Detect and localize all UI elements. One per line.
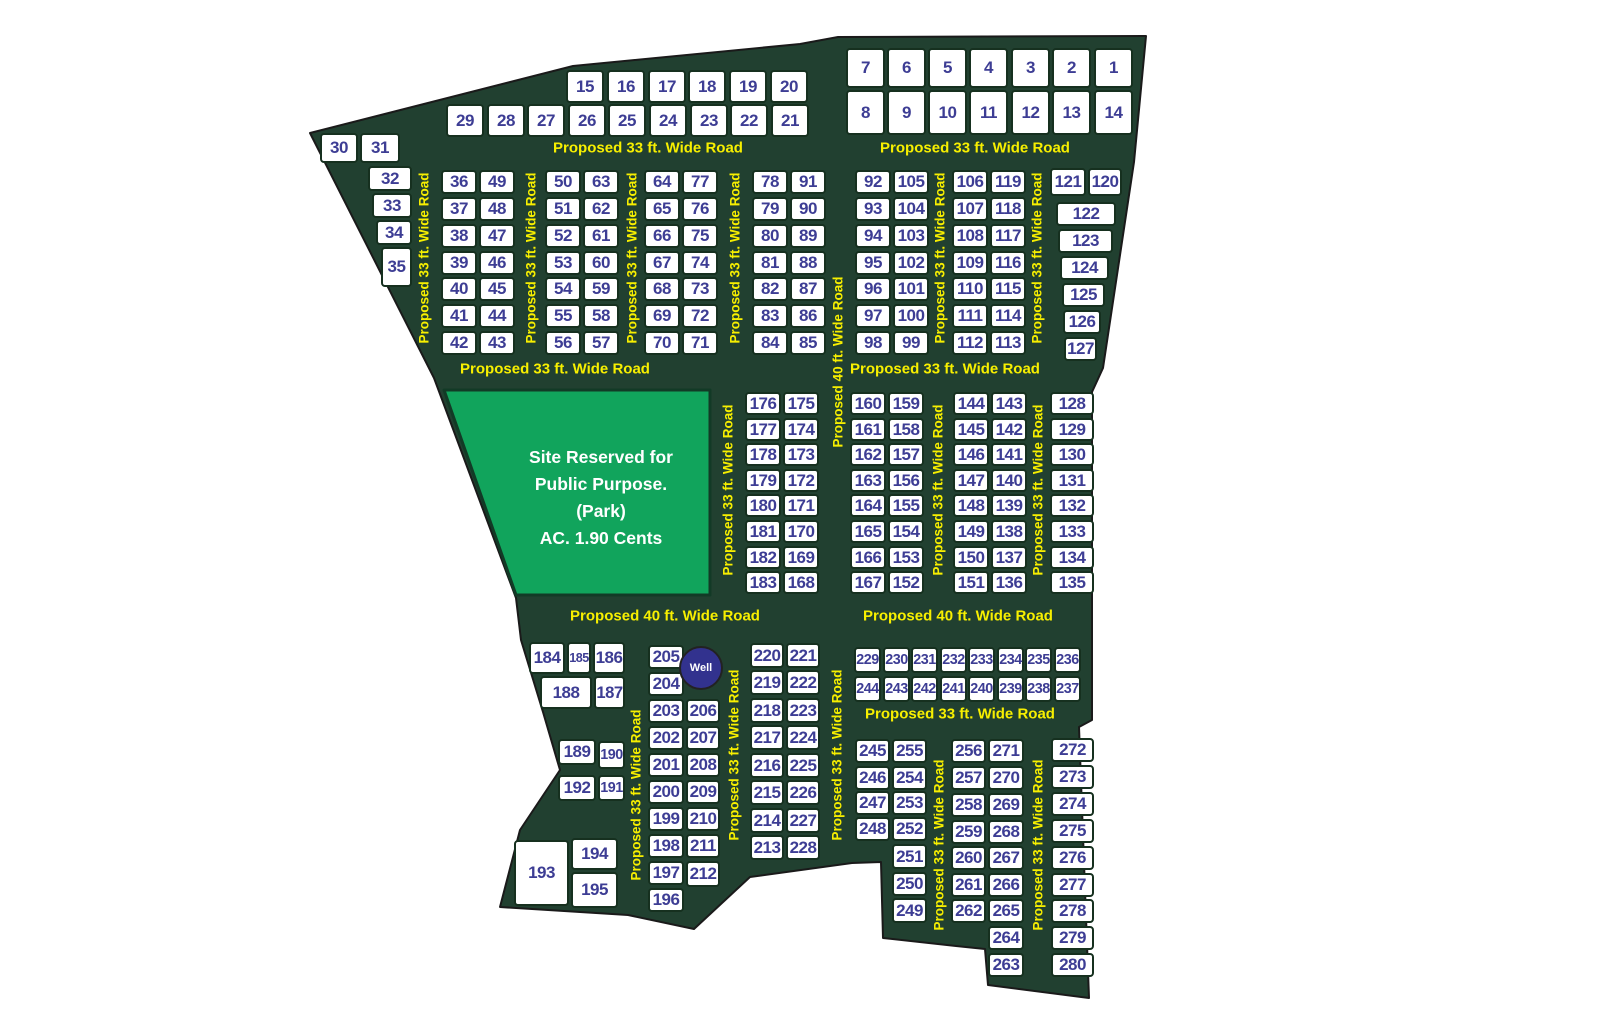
plot-62: 62 (583, 197, 619, 221)
plot-265: 265 (988, 899, 1024, 923)
plot-198: 198 (648, 834, 684, 858)
plot-236: 236 (1054, 647, 1081, 673)
plot-12: 12 (1011, 90, 1050, 135)
park-label-line-3: (Park) (468, 498, 734, 525)
plot-194: 194 (571, 838, 618, 870)
plot-11: 11 (969, 90, 1008, 135)
plot-113: 113 (990, 331, 1026, 355)
plot-37: 37 (441, 197, 477, 221)
plot-109: 109 (952, 251, 988, 275)
plot-245: 245 (855, 739, 890, 763)
plot-166: 166 (850, 546, 886, 569)
plot-96: 96 (855, 277, 891, 301)
plot-128: 128 (1050, 392, 1094, 415)
plot-45: 45 (479, 277, 515, 301)
plot-24: 24 (649, 104, 687, 137)
plot-218: 218 (750, 698, 784, 723)
plot-171: 171 (783, 494, 819, 517)
plot-168: 168 (783, 571, 819, 594)
road-label: Proposed 33 ft. Wide Road (727, 670, 742, 841)
road-label: Proposed 33 ft. Wide Road (417, 173, 432, 344)
plot-223: 223 (786, 698, 820, 723)
plot-248: 248 (855, 817, 890, 841)
plot-167: 167 (850, 571, 886, 594)
plot-77: 77 (682, 170, 718, 194)
plot-83: 83 (752, 304, 788, 328)
plot-216: 216 (750, 753, 784, 778)
plot-279: 279 (1051, 926, 1094, 950)
plot-1: 1 (1094, 48, 1133, 88)
plot-118: 118 (990, 197, 1026, 221)
plot-60: 60 (583, 251, 619, 275)
plot-159: 159 (888, 392, 924, 415)
plot-2: 2 (1052, 48, 1091, 88)
plot-136: 136 (991, 571, 1027, 594)
plot-81: 81 (752, 251, 788, 275)
plot-214: 214 (750, 808, 784, 833)
road-label: Proposed 40 ft. Wide Road (831, 277, 846, 448)
plot-250: 250 (892, 872, 927, 896)
plot-125: 125 (1062, 283, 1105, 307)
plot-257: 257 (951, 766, 986, 790)
plot-129: 129 (1050, 418, 1094, 441)
road-label: Proposed 40 ft. Wide Road (863, 608, 1053, 625)
plot-222: 222 (786, 670, 820, 695)
plot-162: 162 (850, 443, 886, 466)
plot-149: 149 (953, 520, 989, 543)
plot-164: 164 (850, 494, 886, 517)
plot-212: 212 (686, 861, 720, 887)
plot-31: 31 (360, 133, 400, 163)
park-label-line-4: AC. 1.90 Cents (468, 525, 734, 552)
plot-267: 267 (988, 846, 1024, 870)
plot-78: 78 (752, 170, 788, 194)
plot-251: 251 (892, 844, 927, 869)
plot-116: 116 (990, 251, 1026, 275)
plot-203: 203 (648, 699, 684, 723)
plot-51: 51 (545, 197, 581, 221)
plot-208: 208 (686, 753, 720, 777)
plot-69: 69 (644, 304, 680, 328)
plot-90: 90 (790, 197, 826, 221)
plot-182: 182 (745, 546, 781, 569)
plot-126: 126 (1063, 310, 1101, 334)
plot-196: 196 (648, 888, 684, 912)
plot-139: 139 (991, 494, 1027, 517)
plot-115: 115 (990, 277, 1026, 301)
plot-120: 120 (1088, 168, 1122, 196)
plot-53: 53 (545, 251, 581, 275)
plot-123: 123 (1058, 229, 1113, 253)
plot-117: 117 (990, 224, 1026, 248)
plot-244: 244 (854, 676, 881, 702)
plot-52: 52 (545, 224, 581, 248)
road-label: Proposed 33 ft. Wide Road (933, 173, 948, 344)
plot-91: 91 (790, 170, 826, 194)
plot-211: 211 (686, 834, 720, 858)
plot-155: 155 (888, 494, 924, 517)
plot-240: 240 (968, 676, 995, 702)
plot-280: 280 (1051, 953, 1094, 977)
plot-111: 111 (952, 304, 988, 328)
plot-264: 264 (988, 926, 1024, 950)
plot-17: 17 (648, 70, 686, 103)
plot-54: 54 (545, 277, 581, 301)
plot-150: 150 (953, 546, 989, 569)
plot-7: 7 (846, 48, 885, 88)
plot-213: 213 (750, 835, 784, 860)
plot-56: 56 (545, 331, 581, 355)
plot-249: 249 (892, 898, 927, 923)
plot-110: 110 (952, 277, 988, 301)
plot-14: 14 (1094, 90, 1133, 135)
plot-233: 233 (968, 647, 995, 673)
park-label-line-2: Public Purpose. (468, 471, 734, 498)
plot-30: 30 (320, 133, 358, 163)
plot-263: 263 (988, 953, 1024, 977)
plot-269: 269 (988, 793, 1024, 817)
plot-4: 4 (969, 48, 1008, 88)
plot-217: 217 (750, 725, 784, 750)
plot-184: 184 (529, 642, 565, 674)
plot-57: 57 (583, 331, 619, 355)
plot-262: 262 (951, 899, 986, 923)
plot-25: 25 (608, 104, 646, 137)
plot-231: 231 (911, 647, 938, 673)
plot-121: 121 (1050, 168, 1086, 196)
plot-144: 144 (953, 392, 989, 415)
plot-268: 268 (988, 820, 1024, 844)
plot-40: 40 (441, 277, 477, 301)
road-label: Proposed 33 ft. Wide Road (553, 140, 743, 157)
plot-160: 160 (850, 392, 886, 415)
plot-189: 189 (558, 739, 596, 765)
plot-195: 195 (571, 872, 618, 908)
plot-275: 275 (1051, 819, 1094, 843)
plot-103: 103 (893, 224, 929, 248)
road-label: Proposed 33 ft. Wide Road (625, 173, 640, 344)
site-plan-map: 1516171819202928272625242322217654321891… (0, 0, 1598, 1027)
plot-27: 27 (527, 104, 565, 137)
plot-165: 165 (850, 520, 886, 543)
plot-224: 224 (786, 725, 820, 750)
plot-255: 255 (892, 739, 927, 763)
plot-135: 135 (1050, 571, 1094, 594)
plot-47: 47 (479, 224, 515, 248)
plot-210: 210 (686, 807, 720, 831)
road-label: Proposed 33 ft. Wide Road (721, 405, 736, 576)
plot-86: 86 (790, 304, 826, 328)
plot-19: 19 (729, 70, 767, 103)
road-label: Proposed 33 ft. Wide Road (1031, 760, 1046, 931)
plot-192: 192 (558, 775, 596, 801)
plot-119: 119 (990, 170, 1026, 194)
plot-122: 122 (1056, 202, 1116, 226)
plot-35: 35 (381, 247, 412, 287)
plot-266: 266 (988, 873, 1024, 897)
plot-88: 88 (790, 251, 826, 275)
plot-65: 65 (644, 197, 680, 221)
plot-75: 75 (682, 224, 718, 248)
plot-186: 186 (593, 642, 625, 674)
plot-36: 36 (441, 170, 477, 194)
plot-74: 74 (682, 251, 718, 275)
road-label: Proposed 33 ft. Wide Road (1030, 173, 1045, 344)
plot-202: 202 (648, 726, 684, 750)
road-label: Proposed 33 ft. Wide Road (880, 140, 1070, 157)
plot-108: 108 (952, 224, 988, 248)
plot-92: 92 (855, 170, 891, 194)
plot-143: 143 (991, 392, 1027, 415)
plot-183: 183 (745, 571, 781, 594)
plot-85: 85 (790, 331, 826, 355)
plot-242: 242 (911, 676, 938, 702)
plot-34: 34 (376, 220, 412, 245)
plot-89: 89 (790, 224, 826, 248)
plot-41: 41 (441, 304, 477, 328)
plot-273: 273 (1051, 765, 1094, 789)
road-label: Proposed 33 ft. Wide Road (850, 361, 1040, 378)
plot-95: 95 (855, 251, 891, 275)
plot-22: 22 (730, 104, 768, 137)
plot-151: 151 (953, 571, 989, 594)
plot-104: 104 (893, 197, 929, 221)
plot-201: 201 (648, 753, 684, 777)
plot-147: 147 (953, 469, 989, 492)
plot-276: 276 (1051, 846, 1094, 870)
plot-106: 106 (952, 170, 988, 194)
plot-154: 154 (888, 520, 924, 543)
plot-5: 5 (928, 48, 967, 88)
plot-48: 48 (479, 197, 515, 221)
plot-33: 33 (372, 193, 412, 218)
plot-18: 18 (688, 70, 726, 103)
plot-39: 39 (441, 251, 477, 275)
plot-127: 127 (1064, 337, 1097, 361)
road-label: Proposed 33 ft. Wide Road (931, 405, 946, 576)
plot-42: 42 (441, 331, 477, 355)
plot-98: 98 (855, 331, 891, 355)
plot-277: 277 (1051, 873, 1094, 897)
plot-197: 197 (648, 861, 684, 885)
plot-191: 191 (598, 775, 625, 801)
plot-234: 234 (997, 647, 1024, 673)
plot-169: 169 (783, 546, 819, 569)
plot-239: 239 (997, 676, 1024, 702)
plot-175: 175 (783, 392, 819, 415)
plot-177: 177 (745, 418, 781, 441)
plot-73: 73 (682, 277, 718, 301)
plot-145: 145 (953, 418, 989, 441)
plot-187: 187 (594, 676, 625, 709)
plot-157: 157 (888, 443, 924, 466)
plot-230: 230 (883, 647, 910, 673)
plot-102: 102 (893, 251, 929, 275)
plot-258: 258 (951, 793, 986, 817)
plot-133: 133 (1050, 520, 1094, 543)
plot-124: 124 (1060, 256, 1109, 280)
plot-229: 229 (854, 647, 881, 673)
plot-87: 87 (790, 277, 826, 301)
road-label: Proposed 33 ft. Wide Road (865, 706, 1055, 723)
plot-112: 112 (952, 331, 988, 355)
plot-64: 64 (644, 170, 680, 194)
road-label: Proposed 33 ft. Wide Road (830, 670, 845, 841)
plot-225: 225 (786, 753, 820, 778)
plot-235: 235 (1025, 647, 1052, 673)
plot-71: 71 (682, 331, 718, 355)
plot-68: 68 (644, 277, 680, 301)
plot-76: 76 (682, 197, 718, 221)
plot-94: 94 (855, 224, 891, 248)
plot-152: 152 (888, 571, 924, 594)
plot-8: 8 (846, 90, 885, 135)
plot-237: 237 (1054, 676, 1081, 702)
plot-181: 181 (745, 520, 781, 543)
plot-80: 80 (752, 224, 788, 248)
plot-134: 134 (1050, 546, 1094, 569)
plot-253: 253 (892, 791, 927, 815)
road-label: Proposed 33 ft. Wide Road (1031, 405, 1046, 576)
plot-207: 207 (686, 726, 720, 750)
plot-261: 261 (951, 873, 986, 897)
plot-241: 241 (940, 676, 967, 702)
plot-10: 10 (928, 90, 967, 135)
plot-193: 193 (514, 840, 569, 906)
plot-180: 180 (745, 494, 781, 517)
plot-38: 38 (441, 224, 477, 248)
plot-107: 107 (952, 197, 988, 221)
plot-232: 232 (940, 647, 967, 673)
plot-274: 274 (1051, 792, 1094, 816)
plot-199: 199 (648, 807, 684, 831)
plot-272: 272 (1051, 738, 1094, 762)
plot-173: 173 (783, 443, 819, 466)
plot-163: 163 (850, 469, 886, 492)
plot-50: 50 (545, 170, 581, 194)
road-label: Proposed 40 ft. Wide Road (570, 608, 760, 625)
well-marker: Well (679, 646, 723, 690)
plot-44: 44 (479, 304, 515, 328)
well-label: Well (690, 662, 712, 674)
plot-67: 67 (644, 251, 680, 275)
plot-28: 28 (487, 104, 525, 137)
plot-179: 179 (745, 469, 781, 492)
plot-3: 3 (1011, 48, 1050, 88)
plot-16: 16 (607, 70, 645, 103)
plot-278: 278 (1051, 899, 1094, 923)
plot-228: 228 (786, 835, 820, 860)
plot-9: 9 (887, 90, 926, 135)
road-label: Proposed 33 ft. Wide Road (460, 361, 650, 378)
plot-174: 174 (783, 418, 819, 441)
plot-172: 172 (783, 469, 819, 492)
plot-26: 26 (568, 104, 606, 137)
plot-227: 227 (786, 808, 820, 833)
plot-156: 156 (888, 469, 924, 492)
plot-100: 100 (893, 304, 929, 328)
plot-114: 114 (990, 304, 1026, 328)
road-label: Proposed 33 ft. Wide Road (524, 173, 539, 344)
plot-219: 219 (750, 670, 784, 695)
plot-190: 190 (598, 741, 625, 769)
plot-13: 13 (1052, 90, 1091, 135)
plot-23: 23 (690, 104, 728, 137)
plot-254: 254 (892, 766, 927, 790)
plot-43: 43 (479, 331, 515, 355)
plot-72: 72 (682, 304, 718, 328)
plot-259: 259 (951, 820, 986, 844)
plot-252: 252 (892, 817, 927, 841)
plot-140: 140 (991, 469, 1027, 492)
plot-247: 247 (855, 791, 890, 815)
plot-221: 221 (786, 643, 820, 668)
plot-161: 161 (850, 418, 886, 441)
plot-158: 158 (888, 418, 924, 441)
plot-209: 209 (686, 780, 720, 804)
plot-29: 29 (446, 104, 484, 137)
plot-142: 142 (991, 418, 1027, 441)
plot-21: 21 (771, 104, 809, 137)
plot-204: 204 (648, 672, 684, 696)
plot-146: 146 (953, 443, 989, 466)
plot-238: 238 (1025, 676, 1052, 702)
plot-200: 200 (648, 780, 684, 804)
plot-260: 260 (951, 846, 986, 870)
plot-49: 49 (479, 170, 515, 194)
plot-82: 82 (752, 277, 788, 301)
plot-99: 99 (893, 331, 929, 355)
plot-271: 271 (988, 739, 1024, 763)
plot-141: 141 (991, 443, 1027, 466)
plot-138: 138 (991, 520, 1027, 543)
plot-131: 131 (1050, 469, 1094, 492)
plot-70: 70 (644, 331, 680, 355)
plot-59: 59 (583, 277, 619, 301)
plot-185: 185 (567, 642, 591, 674)
plot-93: 93 (855, 197, 891, 221)
plot-66: 66 (644, 224, 680, 248)
plot-58: 58 (583, 304, 619, 328)
plot-188: 188 (540, 676, 592, 709)
plot-130: 130 (1050, 443, 1094, 466)
plot-170: 170 (783, 520, 819, 543)
plot-226: 226 (786, 780, 820, 805)
plot-32: 32 (368, 166, 412, 191)
plot-206: 206 (686, 699, 720, 723)
plot-153: 153 (888, 546, 924, 569)
plot-63: 63 (583, 170, 619, 194)
plot-270: 270 (988, 766, 1024, 790)
plot-176: 176 (745, 392, 781, 415)
plot-46: 46 (479, 251, 515, 275)
road-label: Proposed 33 ft. Wide Road (629, 710, 644, 881)
road-label: Proposed 33 ft. Wide Road (728, 173, 743, 344)
plot-101: 101 (893, 277, 929, 301)
plot-105: 105 (893, 170, 929, 194)
plot-84: 84 (752, 331, 788, 355)
plot-132: 132 (1050, 494, 1094, 517)
plot-15: 15 (566, 70, 604, 103)
park-label: Site Reserved for Public Purpose. (Park)… (468, 444, 734, 552)
plot-6: 6 (887, 48, 926, 88)
plot-61: 61 (583, 224, 619, 248)
plot-256: 256 (951, 739, 986, 763)
plot-148: 148 (953, 494, 989, 517)
plot-20: 20 (770, 70, 808, 103)
park-label-line-1: Site Reserved for (468, 444, 734, 471)
plot-137: 137 (991, 546, 1027, 569)
